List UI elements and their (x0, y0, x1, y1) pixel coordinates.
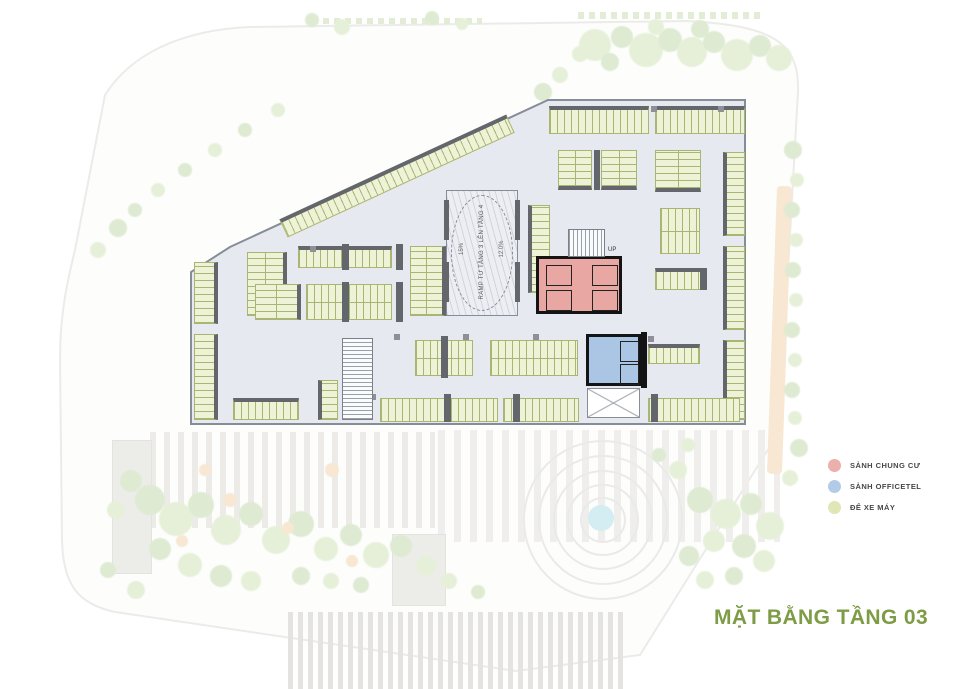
officetel-lobby-core (586, 334, 641, 386)
motorbike-parking-module (601, 150, 637, 190)
legend-swatch (828, 480, 841, 493)
motorbike-parking-module (380, 398, 498, 422)
wall-bar (396, 244, 403, 270)
legend-item: ĐỂ XE MÁY (828, 497, 960, 518)
stair-shaft (342, 338, 373, 420)
stair-shaft (568, 229, 605, 257)
floorplan-canvas: RAMP TỪ TẦNG 3 LÊN TẦNG 415%12.0%UP SẢNH… (0, 0, 960, 689)
motorbike-parking-module (549, 106, 649, 134)
wall-bar (513, 394, 520, 422)
elevator-cell (546, 265, 572, 286)
column-pillar (533, 334, 539, 340)
motorbike-parking-module (655, 268, 701, 290)
motorbike-parking-module (660, 208, 700, 254)
motorbike-parking-module (306, 284, 392, 320)
column-pillar (648, 336, 654, 342)
motorbike-parking-module (558, 150, 592, 190)
wall-bar (651, 394, 658, 422)
wall-bar (441, 336, 448, 378)
ramp-wall-bar (444, 262, 449, 302)
legend-item: SẢNH CHUNG CƯ (828, 455, 960, 476)
ramp-wall-bar (444, 200, 449, 240)
column-pillar (394, 334, 400, 340)
motorbike-parking-module (194, 262, 218, 324)
motorbike-parking-module (648, 398, 740, 422)
legend-label: SẢNH OFFICETEL (850, 482, 921, 491)
wall-bar (342, 282, 349, 322)
legend: SẢNH CHUNG CƯSẢNH OFFICETELĐỂ XE MÁY (828, 455, 960, 518)
legend-label: ĐỂ XE MÁY (850, 503, 895, 512)
page-title: MẶT BẰNG TẦNG 03 (714, 606, 928, 630)
column-pillar (718, 106, 724, 112)
column-pillar (310, 246, 316, 252)
ramp-wall-bar (515, 200, 520, 240)
elevator-cell (620, 341, 639, 362)
wall-bar (396, 282, 403, 322)
wall-bar (594, 150, 600, 190)
ramp-slope-label-right: 12.0% (499, 237, 505, 261)
elevator-cell (546, 290, 572, 311)
ramp-slope-label-left: 15% (459, 237, 465, 261)
legend-item: SẢNH OFFICETEL (828, 476, 960, 497)
motorbike-parking-module (655, 106, 745, 134)
residential-lobby-core (536, 256, 622, 314)
column-pillar (463, 334, 469, 340)
motorbike-parking-module (490, 340, 578, 376)
legend-swatch (828, 459, 841, 472)
motorbike-parking-module (318, 380, 338, 420)
building-plan: RAMP TỪ TẦNG 3 LÊN TẦNG 415%12.0%UP (0, 0, 960, 689)
motorbike-parking-module (194, 334, 218, 420)
wall-bar (342, 244, 349, 270)
legend-label: SẢNH CHUNG CƯ (850, 461, 920, 470)
wall-bar (700, 268, 707, 290)
motorbike-parking-module (648, 344, 700, 364)
column-pillar (651, 106, 657, 112)
motorbike-parking-module (655, 150, 701, 192)
ramp-label: RAMP TỪ TẦNG 3 LÊN TẦNG 4 (479, 192, 485, 312)
up-label: UP (608, 247, 616, 253)
ramp-wall-bar (515, 262, 520, 302)
motorbike-parking-module (723, 246, 745, 330)
motorbike-parking-module (233, 398, 299, 420)
motorbike-parking-module (723, 152, 745, 236)
void-area (587, 388, 640, 418)
motorbike-parking-module (410, 246, 446, 316)
core-wall-stub (641, 332, 647, 388)
legend-swatch (828, 501, 841, 514)
motorbike-parking-module (255, 284, 301, 320)
elevator-cell (620, 364, 639, 385)
wall-bar (444, 394, 451, 422)
elevator-cell (592, 290, 618, 311)
elevator-cell (592, 265, 618, 286)
